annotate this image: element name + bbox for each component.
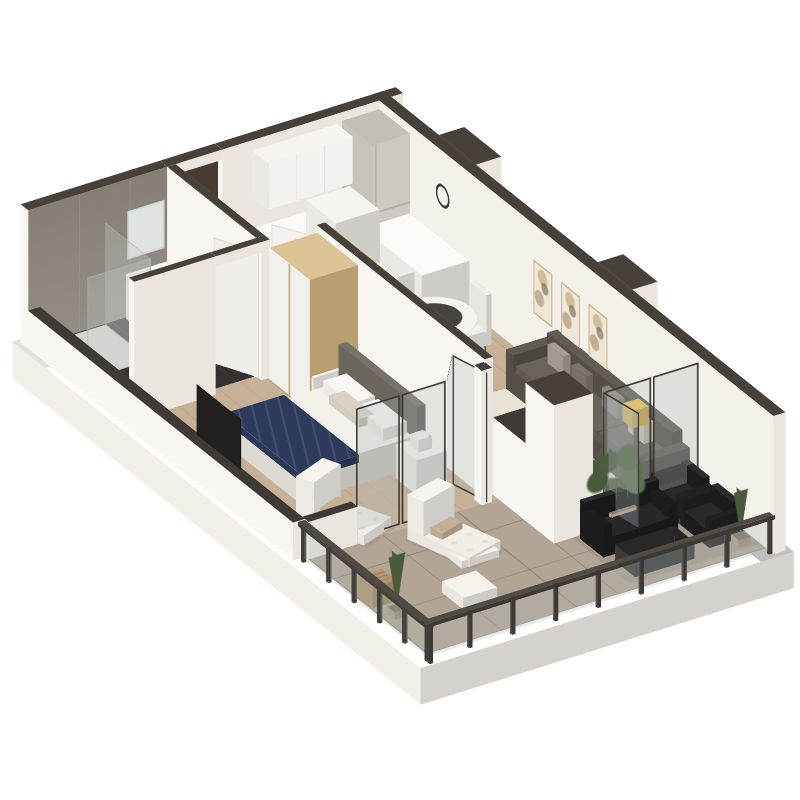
railing-post-se-7-se-face <box>683 544 686 581</box>
railing-post-se-2-se-face <box>469 611 472 648</box>
railing-post-se-8-se-face <box>726 531 729 568</box>
outdoor-sofa-arm-west-se-face <box>603 524 611 558</box>
floor-plan-render <box>0 0 800 800</box>
dining-chair-east-back-se-face <box>486 294 491 332</box>
glass-end-post-sw-face <box>474 365 481 506</box>
railing-post-se-6-se-face <box>641 557 644 594</box>
railing-post-se-4-se-face <box>555 584 558 621</box>
pillar-full-sw-face <box>525 383 554 544</box>
railing-post-se-5-se-face <box>598 571 601 608</box>
railing-post-sw-6-se-face <box>430 627 433 664</box>
lounger-1-backrest-sw-face <box>296 476 314 517</box>
railing-post-se-9-se-face <box>769 517 772 554</box>
railing-post-se-3-se-face <box>512 598 515 635</box>
ne-wall-se-face <box>773 412 785 554</box>
bedroom-glass-1 <box>356 395 400 539</box>
